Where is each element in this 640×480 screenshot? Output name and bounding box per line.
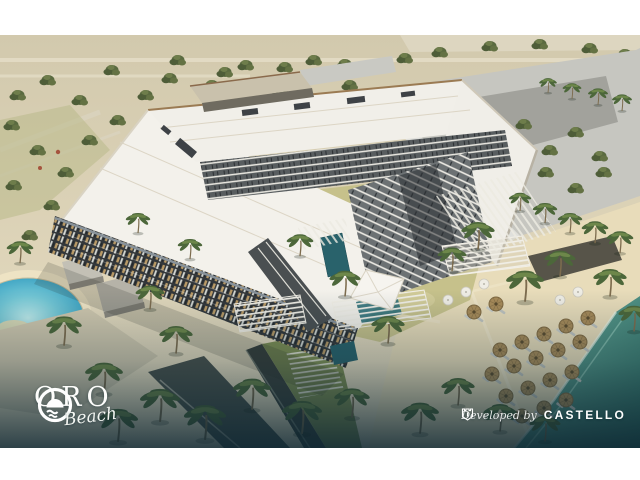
render-frame: ORO Beach Developed by CASTELLO: [0, 0, 640, 480]
brand-tagline: Beach: [63, 406, 118, 429]
developer-credit: Developed by CASTELLO: [461, 408, 626, 422]
brand-logo: ORO Beach: [34, 384, 117, 426]
aerial-render-photo: ORO Beach Developed by CASTELLO: [0, 35, 640, 448]
castle-icon: [461, 408, 474, 421]
developer-name: CASTELLO: [544, 408, 626, 422]
